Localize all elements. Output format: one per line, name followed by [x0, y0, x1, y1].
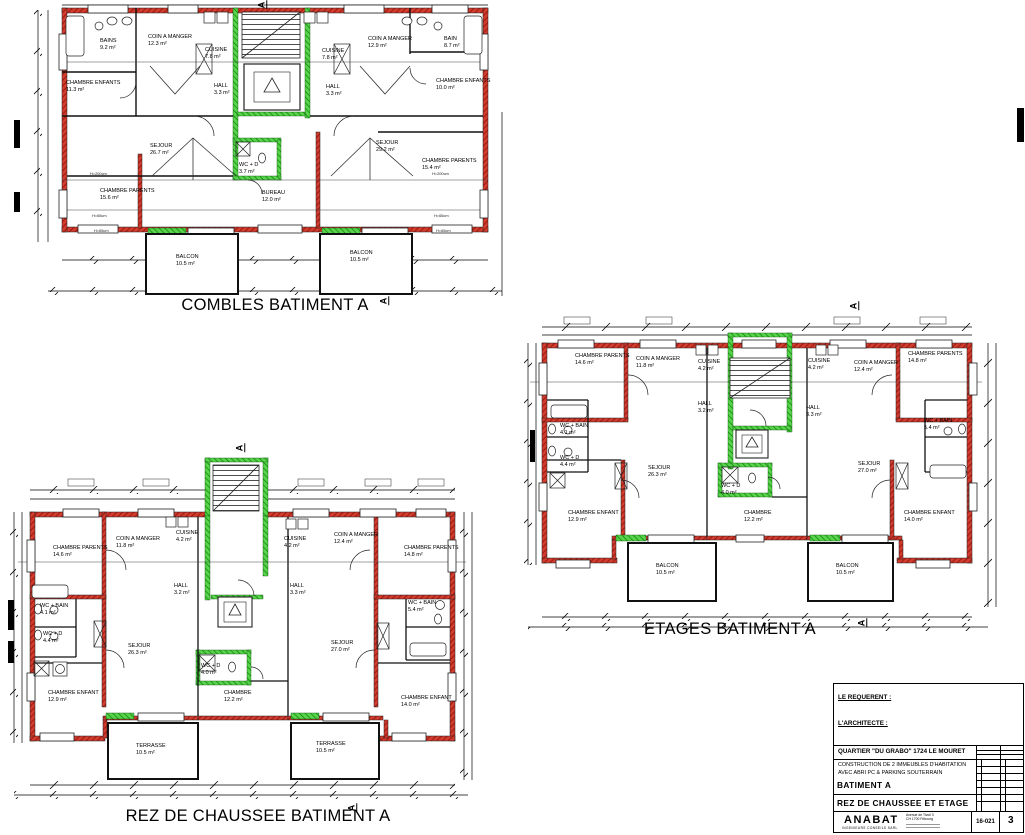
room-label: CHAMBRE 12.2 m²	[224, 690, 252, 704]
room-label: CHAMBRE PARENTS 15.4 m²	[422, 158, 477, 172]
divider	[999, 811, 1000, 832]
room-label: SEJOUR 29.2 m²	[376, 140, 398, 154]
divider	[834, 811, 1023, 812]
room-label: CHAMBRE ENFANT 12.9 m²	[48, 690, 99, 704]
room-label: SEJOUR 26.3 m²	[648, 465, 670, 479]
firm-contact-line	[906, 824, 940, 825]
revision-table-row	[976, 787, 1023, 788]
room-label: COIN A MANGER 12.4 m²	[334, 532, 378, 546]
divider	[834, 759, 976, 760]
section-marker-a: A	[857, 619, 867, 628]
room-label: SEJOUR 26.7 m²	[150, 143, 172, 157]
firm-logo: ANABAT	[844, 814, 899, 826]
revision-table-row	[976, 773, 1023, 774]
room-label: CHAMBRE PARENTS 14.8 m²	[908, 351, 963, 365]
drawing-sheet: { "sheet": { "wall_red": "#d23b2e", "wal…	[0, 0, 1025, 831]
room-label: COIN A MANGER 11.8 m²	[636, 356, 680, 370]
section-marker-a: A	[849, 302, 859, 311]
room-label: BAIN 8.7 m²	[444, 36, 460, 50]
room-label: CHAMBRE ENFANT 12.9 m²	[568, 510, 619, 524]
room-label: COIN A MANGER 12.9 m²	[368, 36, 412, 50]
rez-drawing	[8, 445, 508, 835]
room-label: COIN A MANGER 12.3 m²	[148, 34, 192, 48]
room-label: WC + D 4.4 m²	[43, 631, 62, 645]
room-label: CHAMBRE PARENTS 15.6 m²	[100, 188, 155, 202]
room-label: WC + D 4.0 m²	[201, 663, 220, 677]
room-label: COIN A MANGER 12.4 m²	[854, 360, 898, 374]
room-label: CUISINE 4.2 m²	[698, 359, 720, 373]
plan-title-etages: ETAGES BATIMENT A	[580, 620, 880, 639]
room-label: BALCON 10.5 m²	[656, 563, 679, 577]
room-label: WC + BAIN 5.4 m²	[408, 600, 436, 614]
revision-table-row	[976, 794, 1023, 795]
batiment-label: BATIMENT A	[837, 780, 891, 790]
plan-title-combles: COMBLES BATIMENT A	[62, 296, 488, 315]
room-label: WC + D 3.7 m²	[239, 162, 258, 176]
room-label: BUREAU 12.0 m²	[262, 190, 285, 204]
room-label: CHAMBRE ENFANTS 10.0 m²	[436, 78, 490, 92]
room-label: CHAMBRE ENFANT 14.0 m²	[401, 695, 452, 709]
project-quartier: QUARTIER "DU GRABO" 1724 LE MOURET	[838, 748, 965, 755]
room-label: HALL 3.2 m²	[174, 583, 190, 597]
divider	[834, 794, 976, 795]
title-block: LE REQUERENT : L'ARCHITECTE : QUARTIER "…	[833, 683, 1024, 833]
room-label: HALL 3.3 m²	[326, 84, 342, 98]
height-label: H=65cm	[94, 228, 109, 233]
room-label: TERRASSE 10.5 m²	[136, 743, 166, 757]
room-label: BALCON 10.5 m²	[836, 563, 859, 577]
room-label: SEJOUR 26.3 m²	[128, 643, 150, 657]
plan-title-rez: REZ DE CHAUSSEE BATIMENT A	[8, 807, 508, 826]
room-label: WC + BAIN 4.1 m²	[560, 423, 588, 437]
firm-subtitle: INGENIEURS CONSEILS SARL	[842, 826, 898, 830]
revision-table-row	[976, 750, 1023, 751]
room-label: CHAMBRE ENFANT 14.0 m²	[904, 510, 955, 524]
firm-contact-line	[906, 827, 940, 828]
room-label: CHAMBRE PARENTS 14.6 m²	[575, 353, 630, 367]
revision-table-row	[976, 759, 1023, 760]
room-label: CUISINE 7.8 m²	[322, 48, 344, 62]
room-label: BAINS 9.2 m²	[100, 38, 117, 52]
floor-plan-etages: CHAMBRE PARENTS 14.6 m² COIN A MANGER 11…	[520, 315, 1025, 660]
room-label: WC + BAIN 5.4 m²	[924, 418, 952, 432]
height-label: H=65cm	[436, 228, 451, 233]
room-label: WC + BAIN 4.1 m²	[40, 603, 68, 617]
architecte-label: L'ARCHITECTE :	[838, 720, 888, 727]
project-construction: CONSTRUCTION DE 2 IMMEUBLES D'HABITATION	[838, 762, 966, 768]
height-label: H=200cm	[90, 171, 107, 176]
floor-plan-combles: BAINS 9.2 m² COIN A MANGER 12.3 m² CUISI…	[8, 4, 523, 324]
room-label: SEJOUR 27.0 m²	[331, 640, 353, 654]
room-label: HALL 3.3 m²	[290, 583, 306, 597]
room-label: CHAMBRE PARENTS 14.6 m²	[53, 545, 108, 559]
revision-table-row	[976, 754, 1023, 755]
room-label: SEJOUR 27.0 m²	[858, 461, 880, 475]
section-marker-a: A	[257, 1, 267, 10]
revision-table-row	[976, 780, 1023, 781]
requerant-label: LE REQUERENT :	[838, 694, 891, 701]
revision-table-row	[976, 801, 1023, 802]
room-label: CUISINE 7.8 m²	[205, 47, 227, 61]
room-label: WC + D 4.0 m²	[721, 483, 740, 497]
page-number: 3	[1008, 815, 1014, 826]
height-label: H=65cm	[434, 213, 449, 218]
section-marker-a: A	[379, 297, 389, 306]
room-label: HALL 3.3 m²	[214, 83, 230, 97]
room-label: COIN A MANGER 11.8 m²	[116, 536, 160, 550]
doc-number: 16-021	[972, 819, 999, 825]
divider	[834, 745, 1023, 746]
room-label: BALCON 10.5 m²	[350, 250, 373, 264]
revision-table-row	[976, 766, 1023, 767]
room-label: HALL 3.2 m²	[698, 401, 714, 415]
room-label: CUISINE 4.2 m²	[808, 358, 830, 372]
room-label: CHAMBRE 12.2 m²	[744, 510, 772, 524]
height-label: H=65cm	[92, 213, 107, 218]
room-label: CUISINE 4.2 m²	[176, 530, 198, 544]
room-label: TERRASSE 10.5 m²	[316, 741, 346, 755]
room-label: CUISINE 4.2 m²	[284, 536, 306, 550]
floor-plan-rez: CHAMBRE PARENTS 14.6 m² COIN A MANGER 11…	[8, 445, 508, 835]
room-label: CHAMBRE PARENTS 14.8 m²	[404, 545, 459, 559]
fold-mark	[1017, 108, 1024, 142]
section-marker-a: A	[235, 444, 245, 453]
section-marker-a: A	[347, 804, 357, 813]
project-abri: AVEC ABRI PC & PARKING SOUTERRAIN	[838, 770, 942, 776]
firm-address: Avenue de Tivoli 3 CH 1700 Fribourg	[906, 813, 934, 822]
room-label: CHAMBRE ENFANTS 11.3 m²	[66, 80, 120, 94]
room-label: HALL 3.3 m²	[806, 405, 822, 419]
room-label: WC + D 4.4 m²	[560, 455, 579, 469]
height-label: H=200cm	[432, 171, 449, 176]
room-label: BALCON 10.5 m²	[176, 254, 199, 268]
sheet-title: REZ DE CHAUSSEE ET ETAGE	[837, 798, 969, 808]
